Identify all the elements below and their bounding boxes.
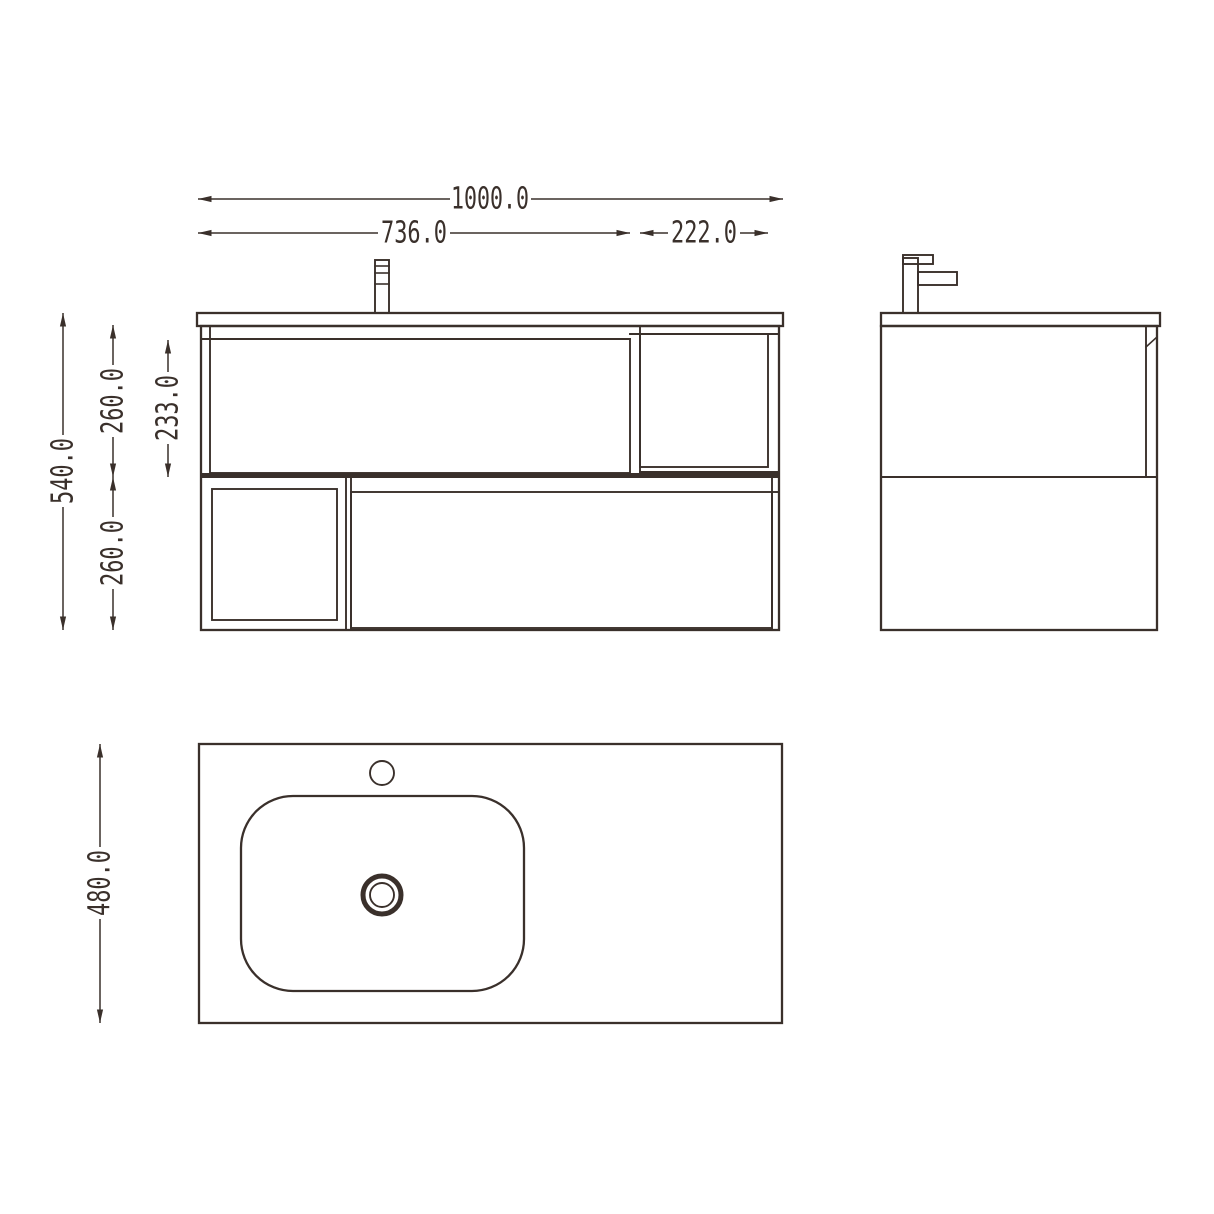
dimension-label-right-shelf-width: 222.0 xyxy=(671,216,737,251)
countertop-plan xyxy=(199,744,782,1023)
front-elevation-view xyxy=(197,260,783,630)
upper-drawer-front xyxy=(210,339,630,473)
faucet-side xyxy=(903,255,957,313)
dimensions: 1000.0 736.0 222.0 540.0 260.0 233.0 260… xyxy=(46,182,784,1024)
upper-open-shelf xyxy=(640,334,768,467)
basin-outline xyxy=(241,796,524,991)
cabinet-side xyxy=(881,326,1157,630)
vanity-drawing: 1000.0 736.0 222.0 540.0 260.0 233.0 260… xyxy=(0,0,1214,1214)
lower-open-shelf xyxy=(212,489,337,620)
side-elevation-view xyxy=(881,255,1160,630)
countertop-side xyxy=(881,313,1160,326)
faucet-body xyxy=(375,260,389,313)
drain-inner-ring xyxy=(370,883,394,907)
faucet-body xyxy=(903,258,918,313)
dimension-label-drawer-front-height: 233.0 xyxy=(151,375,186,441)
technical-drawing-canvas: 1000.0 736.0 222.0 540.0 260.0 233.0 260… xyxy=(0,0,1214,1214)
dimension-label-left-section-width: 736.0 xyxy=(381,216,447,251)
lower-drawer-front xyxy=(351,492,772,628)
faucet-spout xyxy=(918,272,957,285)
cabinet-mid-divider xyxy=(201,473,779,478)
side-notch-line xyxy=(1146,337,1157,347)
dimension-label-depth: 480.0 xyxy=(83,850,118,916)
countertop-front xyxy=(197,313,783,326)
dimension-label-total-width: 1000.0 xyxy=(451,182,529,217)
faucet-front xyxy=(375,260,389,313)
dimension-label-upper-section-height: 260.0 xyxy=(96,368,131,434)
drain-outer-ring xyxy=(363,876,401,914)
faucet-hole xyxy=(370,761,394,785)
dimension-label-lower-section-height: 260.0 xyxy=(96,520,131,586)
plan-view xyxy=(199,744,782,1023)
dimension-label-total-height: 540.0 xyxy=(46,438,81,504)
